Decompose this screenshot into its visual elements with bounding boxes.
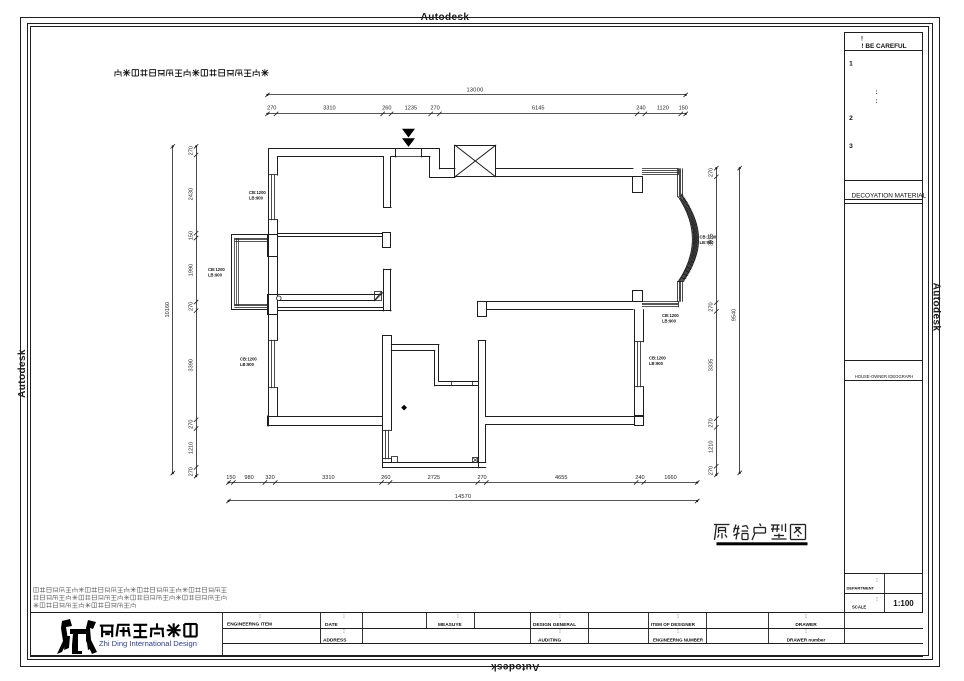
svg-text:6145: 6145 bbox=[532, 106, 544, 112]
svg-text:3310: 3310 bbox=[323, 106, 335, 112]
svg-text:240: 240 bbox=[635, 475, 644, 481]
svg-text:150: 150 bbox=[679, 106, 688, 112]
svg-text:1210: 1210 bbox=[709, 441, 715, 453]
svg-text:150: 150 bbox=[226, 475, 235, 481]
svg-text:ITEM OF DESIGNER: ITEM OF DESIGNER bbox=[651, 622, 696, 627]
svg-text:980: 980 bbox=[244, 475, 253, 481]
svg-text:270: 270 bbox=[709, 418, 715, 427]
svg-text:270: 270 bbox=[188, 419, 194, 428]
svg-text:1235: 1235 bbox=[405, 106, 417, 112]
svg-text:270: 270 bbox=[709, 168, 715, 177]
svg-text:CB:1200: CB:1200 bbox=[649, 356, 666, 361]
svg-text:3335: 3335 bbox=[709, 359, 715, 371]
svg-text:MEASUYE: MEASUYE bbox=[438, 622, 463, 628]
svg-text:270: 270 bbox=[188, 467, 194, 476]
svg-text:Autodesk: Autodesk bbox=[421, 12, 470, 23]
svg-text:! BE CAREFUL: ! BE CAREFUL bbox=[861, 43, 906, 50]
svg-text:270: 270 bbox=[430, 106, 439, 112]
svg-text:CB:1200: CB:1200 bbox=[249, 190, 266, 195]
svg-text:CB:1200: CB:1200 bbox=[208, 267, 225, 272]
svg-text:270: 270 bbox=[709, 466, 715, 475]
svg-text:3390: 3390 bbox=[188, 359, 194, 371]
svg-text:CB:1200: CB:1200 bbox=[700, 235, 717, 240]
svg-text:Autodesk: Autodesk bbox=[17, 349, 28, 398]
svg-text:270: 270 bbox=[709, 302, 715, 311]
svg-text:1210: 1210 bbox=[188, 442, 194, 454]
svg-text:1: 1 bbox=[849, 61, 853, 68]
svg-text:LB:900: LB:900 bbox=[208, 273, 223, 278]
svg-text::: : bbox=[875, 98, 877, 105]
svg-text:DECOYATION MATERIAL: DECOYATION MATERIAL bbox=[852, 193, 927, 200]
svg-text:1660: 1660 bbox=[664, 475, 676, 481]
svg-text:3: 3 bbox=[849, 143, 853, 150]
svg-text:Zhi Ding International Design: Zhi Ding International Design bbox=[99, 639, 197, 648]
svg-text:CB:1200: CB:1200 bbox=[662, 313, 679, 318]
svg-text:1990: 1990 bbox=[188, 264, 194, 276]
svg-text:LB:900: LB:900 bbox=[240, 362, 255, 367]
svg-text:14570: 14570 bbox=[455, 494, 471, 500]
svg-text:HOUSE-OWNER IDEOGRAPH: HOUSE-OWNER IDEOGRAPH bbox=[855, 374, 914, 379]
svg-text:DATE: DATE bbox=[325, 622, 339, 628]
svg-text:4655: 4655 bbox=[555, 475, 567, 481]
svg-text::: : bbox=[875, 89, 877, 96]
svg-text:1120: 1120 bbox=[657, 106, 669, 112]
svg-text:DRAWER: DRAWER bbox=[795, 622, 817, 628]
svg-text:1:100: 1:100 bbox=[893, 599, 914, 608]
svg-text:ADDRESS: ADDRESS bbox=[323, 638, 347, 644]
svg-text:ENGINEERNG ITEM: ENGINEERNG ITEM bbox=[227, 622, 272, 628]
svg-text:240: 240 bbox=[636, 106, 645, 112]
svg-text:!: ! bbox=[861, 37, 863, 43]
svg-text:CB:1200: CB:1200 bbox=[240, 357, 257, 362]
svg-text:LB:900: LB:900 bbox=[649, 361, 664, 366]
svg-text:ENGINEERNG NUMBER: ENGINEERNG NUMBER bbox=[653, 638, 704, 643]
svg-text:LB:900: LB:900 bbox=[249, 196, 264, 201]
svg-text:SCALE: SCALE bbox=[852, 605, 866, 610]
svg-text:2725: 2725 bbox=[428, 475, 440, 481]
svg-text:270: 270 bbox=[188, 302, 194, 311]
svg-text:270: 270 bbox=[267, 106, 276, 112]
svg-text:DEPARTMENT: DEPARTMENT bbox=[847, 586, 875, 591]
svg-text:AUDITING: AUDITING bbox=[538, 638, 561, 644]
svg-text:13000: 13000 bbox=[467, 88, 484, 94]
svg-text:270: 270 bbox=[188, 146, 194, 155]
svg-text:DESIGN GENERAL: DESIGN GENERAL bbox=[533, 622, 576, 628]
svg-text:2430: 2430 bbox=[188, 188, 194, 200]
svg-text:260: 260 bbox=[382, 106, 391, 112]
svg-text:3310: 3310 bbox=[322, 475, 334, 481]
svg-text:9540: 9540 bbox=[732, 309, 738, 321]
svg-text:LB:900: LB:900 bbox=[662, 319, 677, 324]
svg-text:Autodesk: Autodesk bbox=[931, 283, 942, 332]
svg-text:270: 270 bbox=[477, 475, 486, 481]
svg-text:150: 150 bbox=[188, 231, 194, 240]
svg-text:260: 260 bbox=[381, 475, 390, 481]
svg-text:320: 320 bbox=[265, 475, 274, 481]
svg-text:10160: 10160 bbox=[165, 302, 171, 318]
svg-text:2: 2 bbox=[849, 115, 853, 122]
svg-text:Autodesk: Autodesk bbox=[491, 661, 540, 672]
svg-text:LB:900: LB:900 bbox=[700, 240, 715, 245]
svg-text:DRAWER number: DRAWER number bbox=[787, 638, 826, 643]
